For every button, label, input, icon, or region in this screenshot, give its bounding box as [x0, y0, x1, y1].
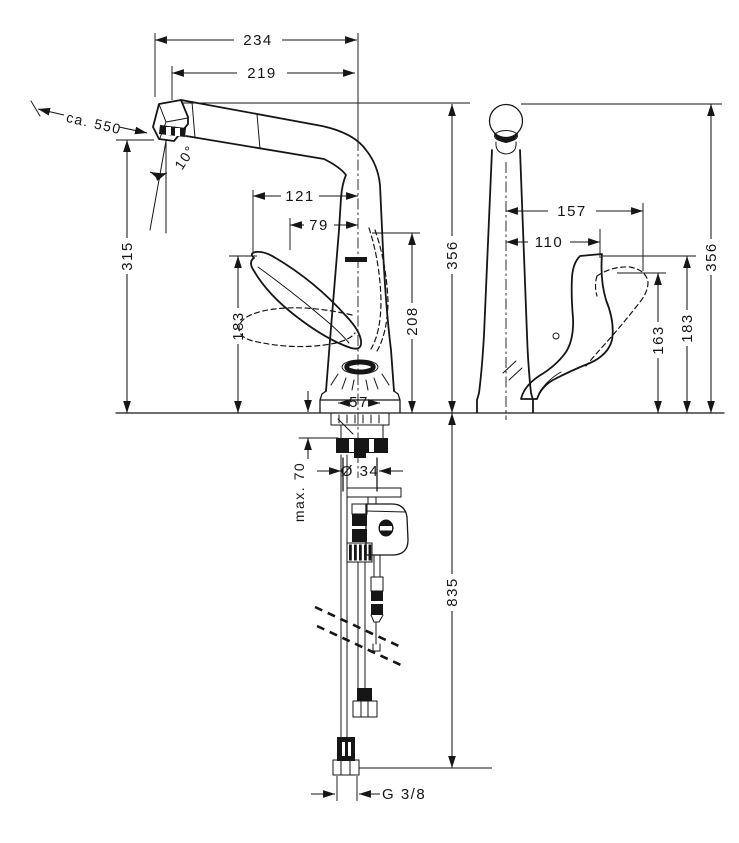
dim-front-total-height-label: 356	[703, 242, 720, 272]
dim-front-handle-height-open-label: 163	[650, 325, 667, 355]
handle-screw	[553, 333, 559, 339]
dim-base-width: 57	[338, 394, 380, 411]
dim-front-handle-height: 183	[679, 256, 696, 413]
side-mounting-assembly	[299, 413, 408, 562]
threaded-rod	[352, 504, 367, 514]
dim-handle-height-side-label: 183	[230, 311, 247, 341]
dim-pullout-length: ca. 550	[31, 101, 147, 137]
clamp-lever	[338, 419, 353, 434]
side-spray-head	[153, 100, 188, 141]
dim-front-handle-reach-open: 157	[506, 203, 643, 220]
dim-total-height-side: 356	[444, 104, 461, 413]
dim-width-overall: 234	[155, 32, 358, 140]
flange-ribs	[339, 415, 379, 423]
dim-spout-reach-label: 219	[247, 65, 277, 82]
side-handle	[251, 252, 361, 349]
dim-front-handle-height-open: 163	[650, 273, 667, 413]
dim-base-width-label: 57	[349, 394, 369, 411]
dim-spray-angle-label: 10°	[171, 142, 198, 172]
dim-spout-height: 315	[119, 140, 136, 413]
dim-handle-reach-side: 121	[253, 188, 358, 252]
dimensions: 234 219 ca. 550 10°	[31, 32, 722, 803]
dim-handle-reach-side-label: 121	[285, 188, 315, 205]
dim-upper-body-height-label: 208	[404, 306, 421, 336]
dim-handle-front-offset: 79	[290, 217, 358, 250]
dim-spout-reach: 219	[172, 65, 355, 100]
dim-shank-diameter-label: Ø 34	[341, 463, 380, 480]
dim-front-handle-reach: 110	[506, 234, 600, 251]
dim-front-handle-reach-open-label: 157	[557, 203, 587, 220]
dim-connection-thread-label: G 3/8	[382, 786, 426, 803]
dim-front-handle-height-label: 183	[679, 313, 696, 343]
hose-break-marks	[315, 607, 405, 667]
base-ring	[347, 362, 374, 372]
dim-max-counter-thickness: max. 70	[291, 391, 308, 522]
front-view	[477, 105, 648, 421]
dim-front-total-height: 356	[703, 104, 720, 413]
hose-guide-bar	[347, 488, 401, 497]
hose-right-thread	[357, 688, 372, 701]
dim-width-overall-label: 234	[243, 32, 273, 49]
dim-handle-height-side: 183	[229, 256, 257, 413]
front-body	[477, 150, 533, 412]
pullout-hose-fitting	[371, 577, 383, 591]
dim-max-counter-thickness-label: max. 70	[291, 462, 307, 522]
dim-pullout-length-label: ca. 550	[65, 109, 124, 137]
pullout-joint-line	[257, 114, 260, 149]
under-deck-flange	[331, 413, 389, 425]
hose-left-thread	[337, 737, 355, 761]
dim-hose-length-label: 835	[444, 577, 461, 607]
dim-connection-thread: G 3/8	[311, 776, 426, 803]
dim-spout-height-label: 315	[119, 241, 136, 271]
faucet-dimension-drawing: 234 219 ca. 550 10°	[0, 0, 739, 843]
side-spout-and-body	[181, 100, 400, 412]
mounting-nut	[336, 438, 388, 453]
dim-front-handle-reach-label: 110	[535, 234, 563, 251]
dim-shank-diameter: Ø 34	[317, 463, 403, 480]
dim-spray-angle: 10°	[150, 141, 199, 233]
side-handle-alt-dashed	[239, 228, 388, 351]
hose-left-nut	[333, 760, 359, 775]
side-view	[153, 100, 408, 775]
front-handle	[521, 254, 613, 399]
base-shading-ticks	[331, 374, 389, 390]
handle-pivot-cap	[345, 257, 367, 262]
dim-handle-front-offset-label: 79	[309, 217, 329, 234]
front-spray-head	[490, 105, 523, 155]
spout-joint-line	[192, 102, 195, 138]
dim-total-height-side-label: 356	[444, 240, 461, 270]
hose-right-nut	[353, 701, 377, 717]
front-handle-alt-dashed	[586, 267, 648, 366]
